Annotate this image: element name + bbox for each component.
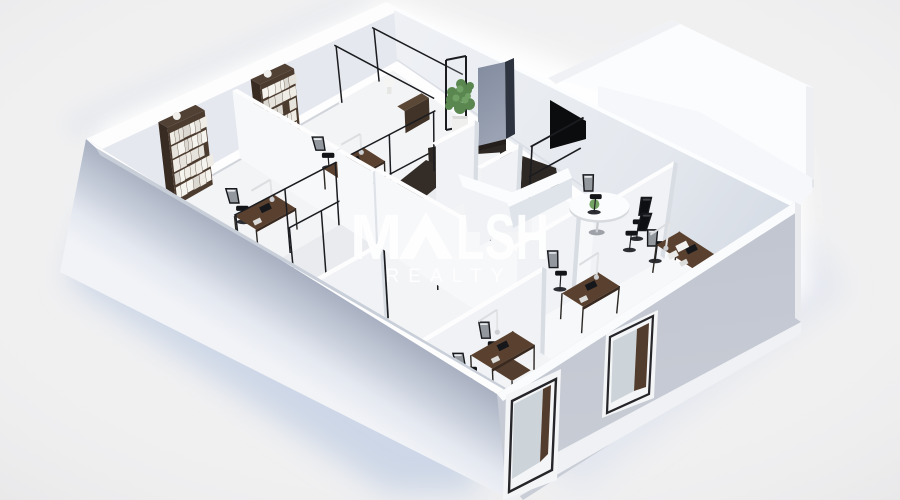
svg-text:M: M [350,201,402,273]
svg-text:LSH: LSH [456,201,549,273]
svg-text:REALTY: REALTY [385,266,512,287]
